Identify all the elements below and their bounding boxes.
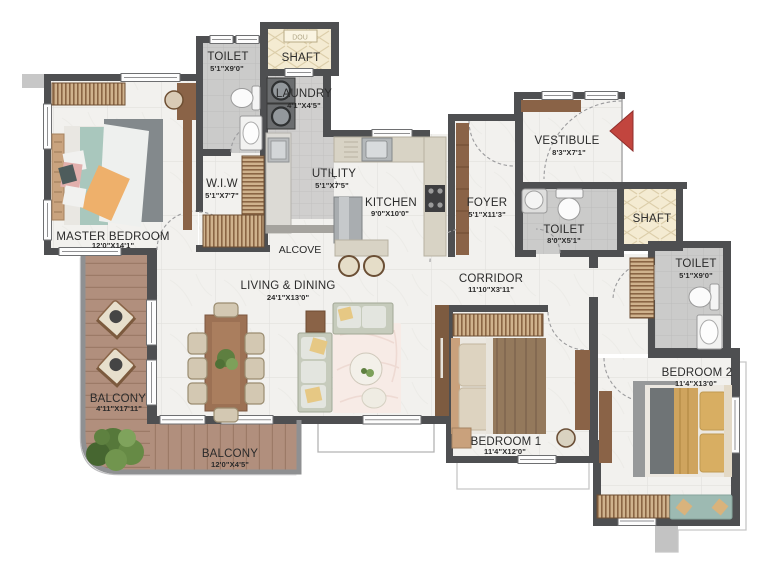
svg-text:4'11"X17'11": 4'11"X17'11" (96, 404, 142, 413)
svg-text:DOU: DOU (292, 35, 308, 42)
svg-text:8'0"X5'1": 8'0"X5'1" (547, 236, 581, 245)
svg-text:UTILITY: UTILITY (312, 168, 356, 180)
svg-text:11'10"X3'11": 11'10"X3'11" (468, 285, 514, 294)
svg-text:W.I.W: W.I.W (206, 178, 238, 190)
svg-text:VESTIBULE: VESTIBULE (534, 135, 599, 147)
svg-text:SHAFT: SHAFT (282, 52, 321, 64)
svg-text:TOILET: TOILET (207, 51, 248, 63)
svg-text:TOILET: TOILET (543, 224, 584, 236)
svg-text:24'1"X13'0": 24'1"X13'0" (267, 293, 310, 302)
svg-text:8'3"X7'1": 8'3"X7'1" (552, 148, 586, 157)
svg-text:11'4"X12'0": 11'4"X12'0" (484, 447, 526, 456)
svg-text:12'0"X4'5": 12'0"X4'5" (211, 460, 249, 469)
svg-text:KITCHEN: KITCHEN (365, 197, 417, 209)
svg-text:5'1"X9'0": 5'1"X9'0" (679, 271, 713, 280)
svg-text:LAUNDRY: LAUNDRY (276, 88, 332, 100)
svg-text:4'1"X4'5": 4'1"X4'5" (287, 101, 321, 110)
svg-text:5'1"X7'7": 5'1"X7'7" (205, 191, 239, 200)
svg-text:5'1"X11'3": 5'1"X11'3" (468, 210, 506, 219)
svg-text:TOILET: TOILET (675, 258, 716, 270)
svg-text:SHAFT: SHAFT (633, 213, 672, 225)
svg-text:12'0"X14'1": 12'0"X14'1" (92, 241, 135, 250)
svg-text:BEDROOM 2: BEDROOM 2 (662, 367, 733, 379)
svg-text:BALCONY: BALCONY (202, 448, 258, 460)
svg-text:5'1"X9'0": 5'1"X9'0" (210, 64, 244, 73)
svg-text:5'1"X7'5": 5'1"X7'5" (315, 181, 349, 190)
svg-text:CORRIDOR: CORRIDOR (459, 273, 523, 285)
svg-text:ALCOVE: ALCOVE (279, 244, 322, 256)
svg-text:9'0"X10'0": 9'0"X10'0" (371, 209, 409, 218)
svg-text:11'4"X13'0": 11'4"X13'0" (675, 379, 717, 388)
svg-text:LIVING & DINING: LIVING & DINING (240, 280, 335, 292)
svg-text:FOYER: FOYER (467, 197, 508, 209)
